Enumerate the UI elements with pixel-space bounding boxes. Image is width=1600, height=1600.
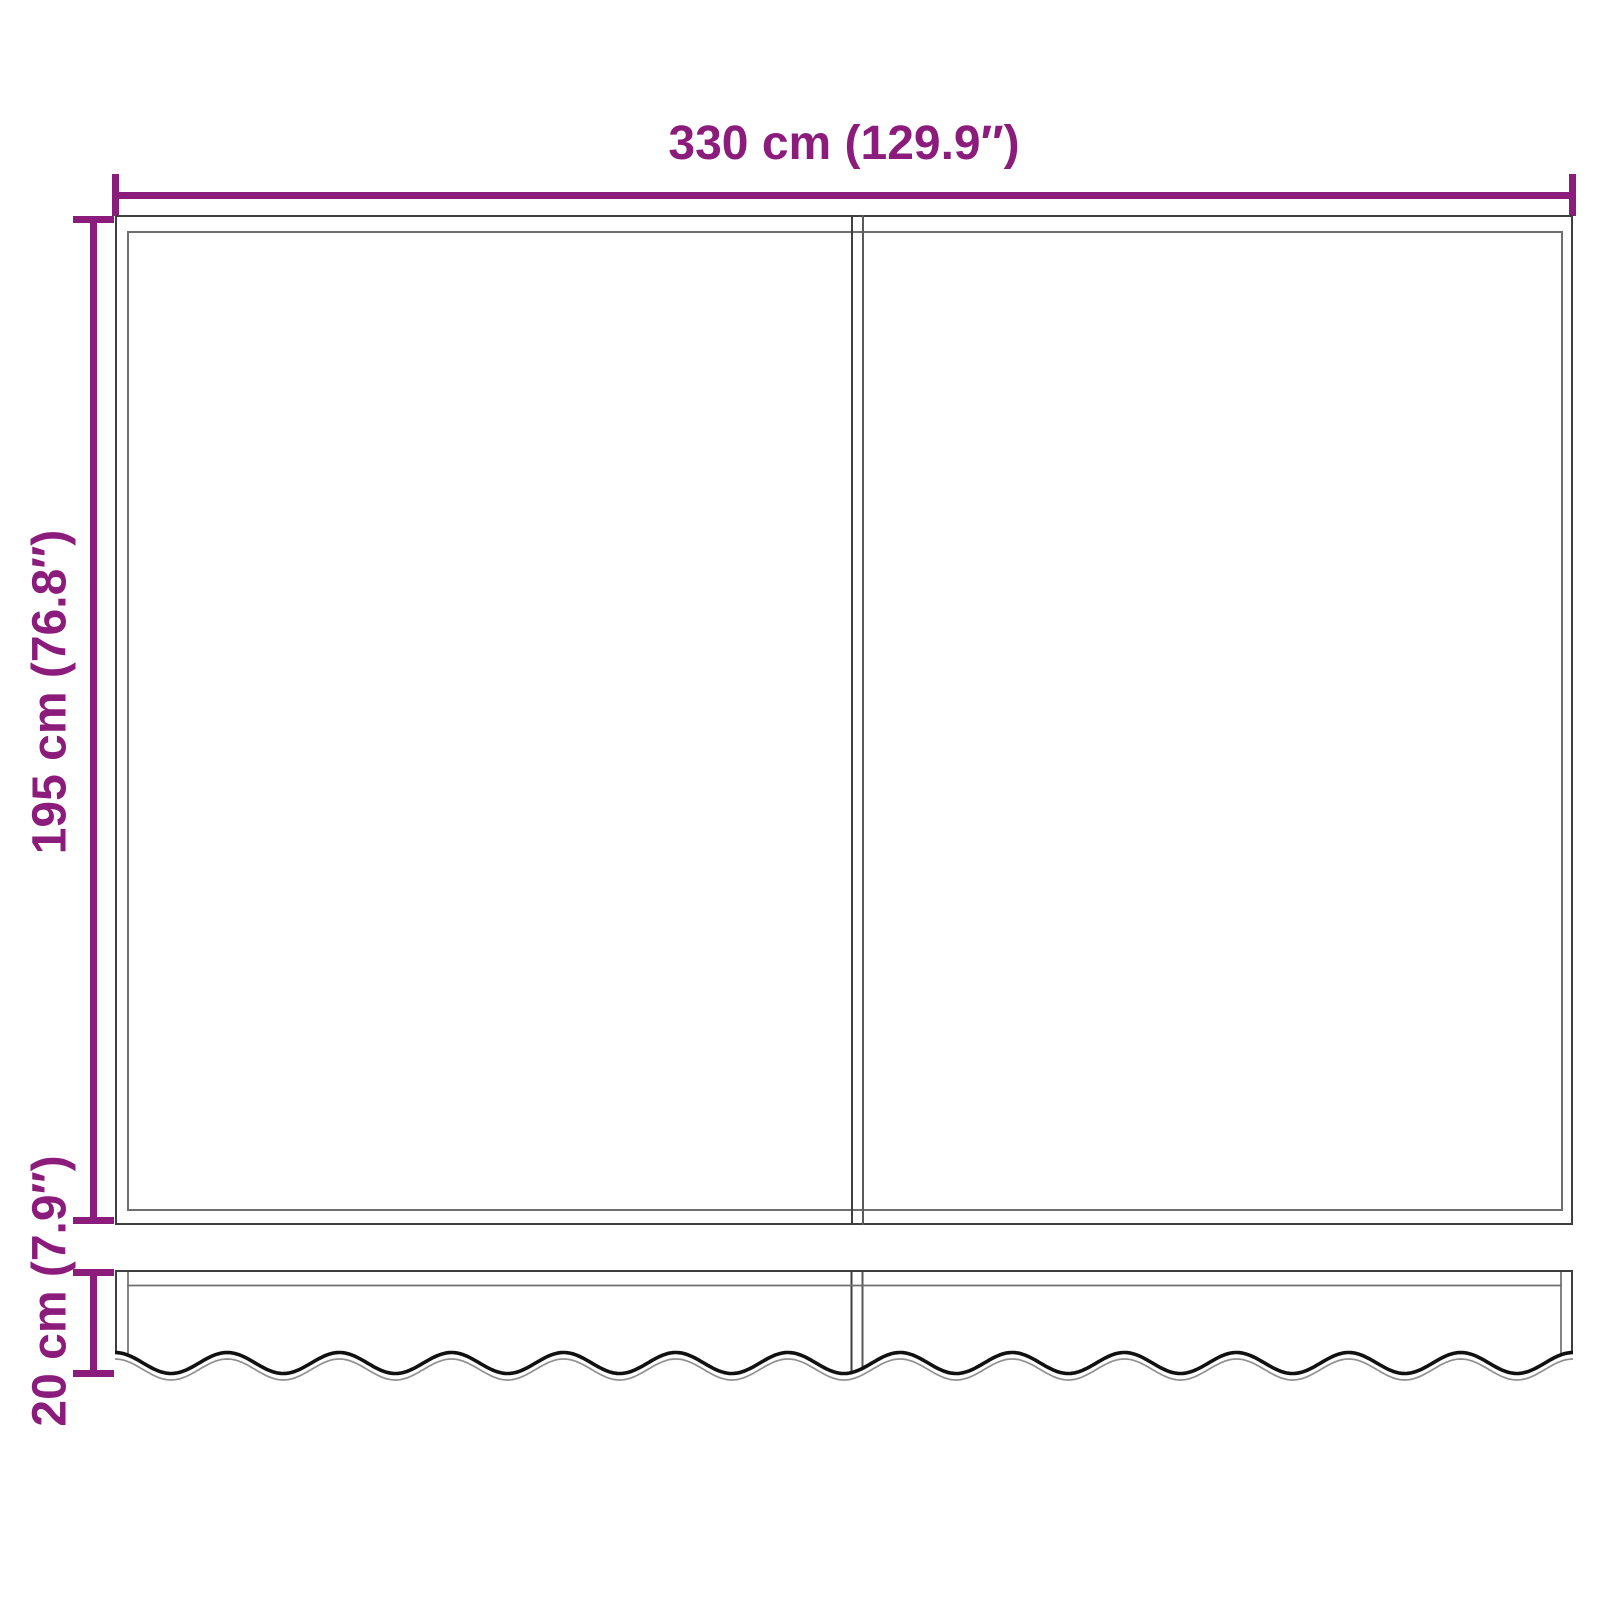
width-dimension-line [115,192,1573,199]
valance-dimension-label: 20 cm (7.9″) [23,1155,78,1426]
height-dimension-tick-bottom [73,1217,114,1224]
dimension-diagram: 330 cm (129.9″) 195 cm (76.8″) 20 cm (7.… [0,0,1600,1600]
valance-panel [105,1261,1583,1396]
width-dimension-tick-right [1569,174,1576,216]
width-dimension-label: 330 cm (129.9″) [115,116,1573,171]
height-dimension-line [90,216,97,1224]
height-dimension-label: 195 cm (76.8″) [23,530,78,855]
width-dimension-tick-left [112,174,119,216]
fabric-panel-center-seam-right [862,215,864,1225]
height-dimension-tick-top [73,216,114,223]
valance-dimension-line [90,1269,97,1377]
fabric-panel-inner-seam [127,231,1563,1211]
fabric-panel-center-seam-left [851,215,853,1225]
